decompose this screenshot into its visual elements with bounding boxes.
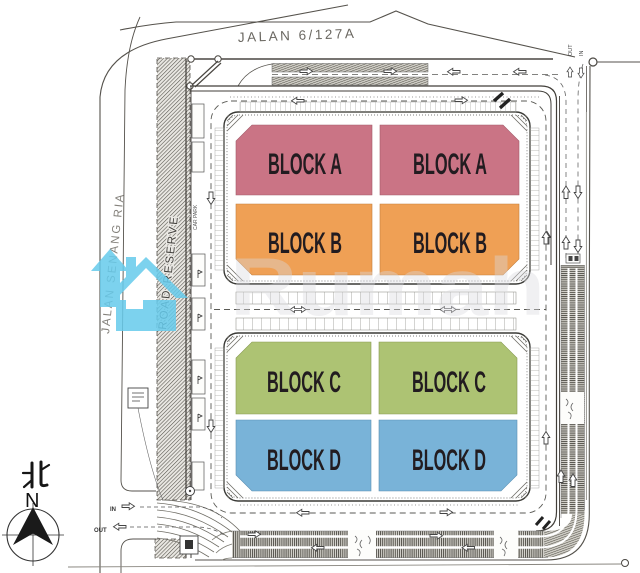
svg-text:N: N	[25, 490, 39, 512]
svg-text:CAR PARK: CAR PARK	[193, 204, 199, 230]
svg-text:IN: IN	[579, 50, 585, 56]
svg-text:OUT: OUT	[94, 528, 107, 534]
svg-text:IN: IN	[110, 507, 116, 513]
svg-text:BLOCK D: BLOCK D	[412, 444, 486, 477]
svg-text:BLOCK A: BLOCK A	[413, 148, 487, 181]
svg-text:BLOCK D: BLOCK D	[267, 444, 341, 477]
svg-text:OUT: OUT	[568, 44, 574, 56]
svg-text:BLOCK A: BLOCK A	[268, 148, 342, 181]
svg-text:BLOCK C: BLOCK C	[412, 366, 486, 399]
svg-text:BLOCK C: BLOCK C	[267, 366, 341, 399]
svg-text:Rumah: Rumah	[230, 242, 545, 333]
